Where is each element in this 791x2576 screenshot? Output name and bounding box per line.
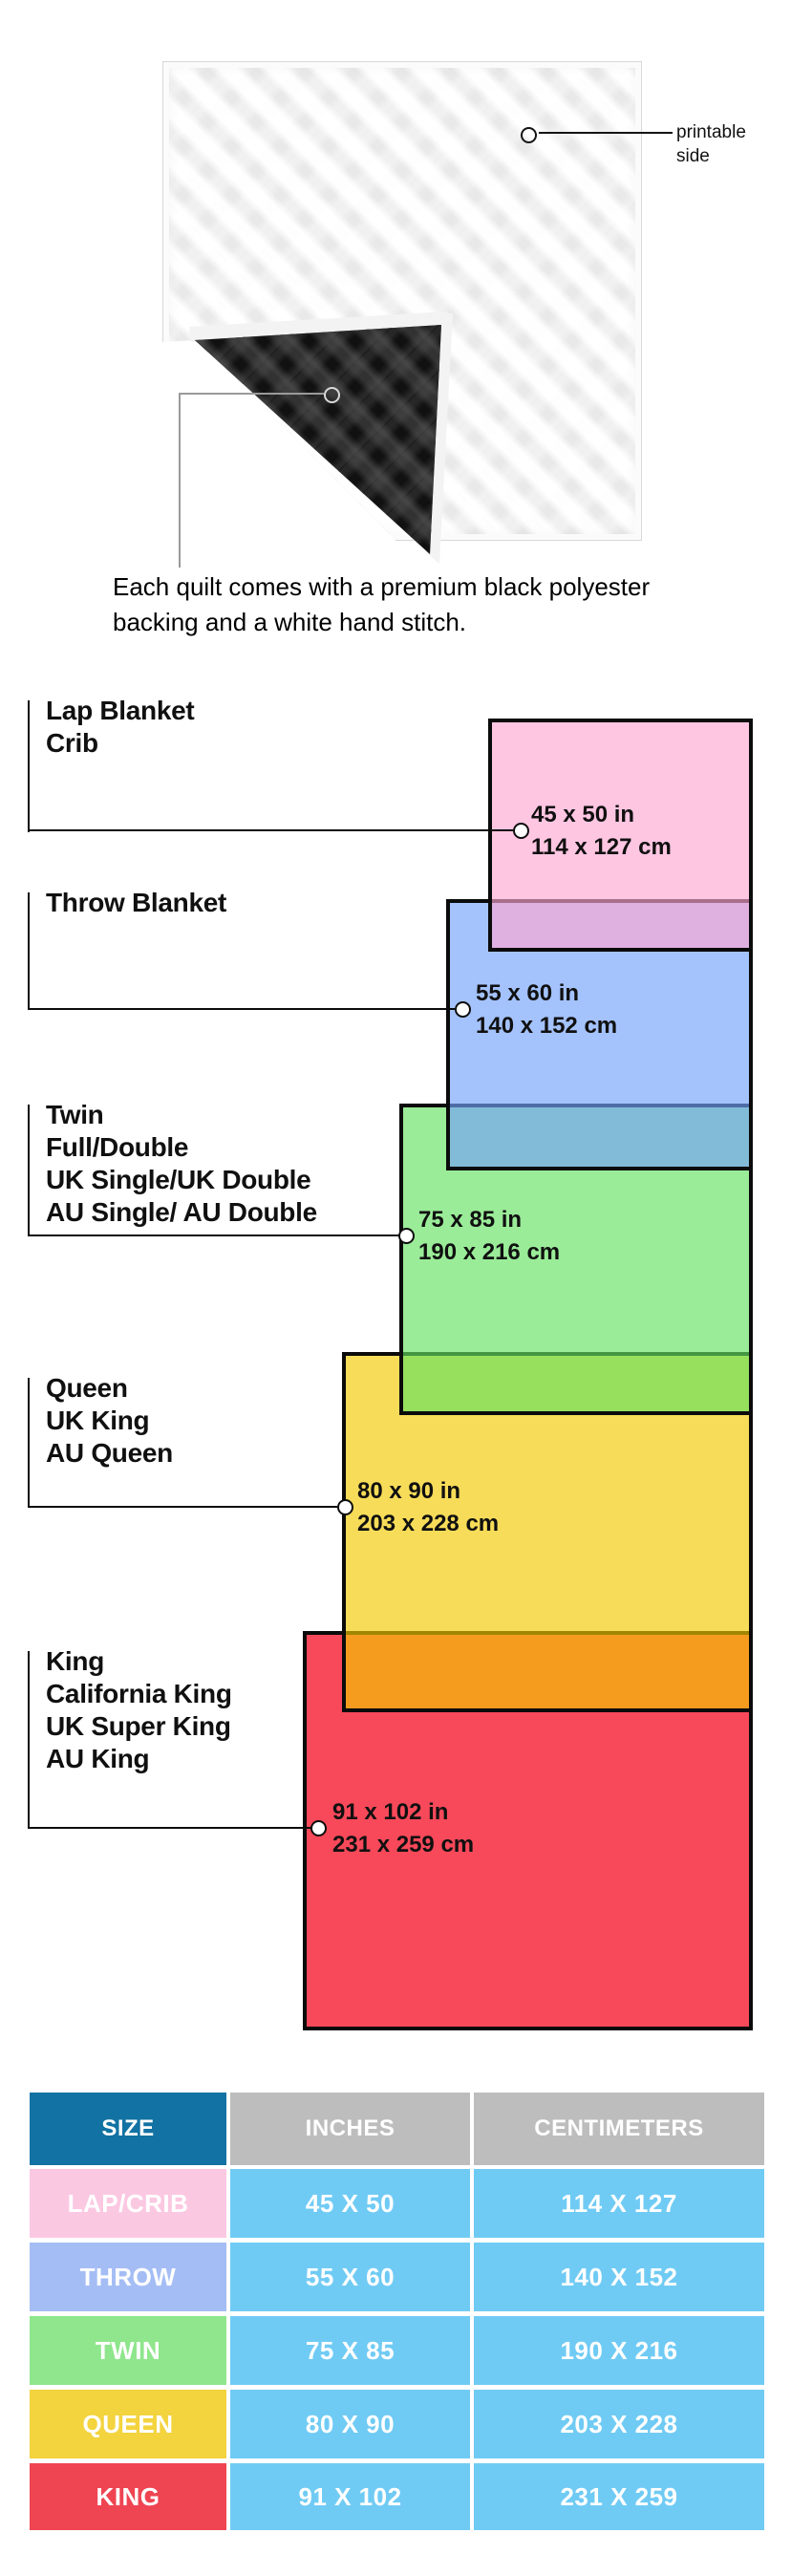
black-backing-leader-line-h: [180, 393, 324, 395]
size-label-queen: 80 x 90 in 203 x 228 cm: [357, 1475, 499, 1540]
printable-side-leader-line: [539, 132, 673, 134]
table-header-inches: INCHES: [230, 2093, 470, 2165]
leader-v-lap: [28, 700, 30, 832]
quilt-illustration: [162, 61, 640, 596]
table-cell-king-centimeters: 231 X 259: [474, 2463, 764, 2530]
quilt-caption: Each quilt comes with a premium black po…: [113, 569, 732, 640]
size-label-king: 91 x 102 in 231 x 259 cm: [332, 1796, 474, 1861]
leader-h-king: [28, 1827, 310, 1829]
table-cell-twin-label: TWIN: [30, 2316, 226, 2385]
size-label-throw: 55 x 60 in 140 x 152 cm: [476, 977, 617, 1042]
table-cell-throw-centimeters: 140 X 152: [474, 2243, 764, 2311]
leader-marker-icon-throw: [455, 1001, 471, 1018]
black-backing-leader-line-v: [179, 393, 181, 568]
table-cell-queen-centimeters: 203 X 228: [474, 2390, 764, 2458]
table-cell-queen-label: QUEEN: [30, 2390, 226, 2458]
leader-marker-icon-queen: [337, 1499, 353, 1515]
size-label-lap: 45 x 50 in 114 x 127 cm: [531, 799, 672, 864]
leader-h-lap: [28, 829, 513, 831]
leader-v-throw: [28, 892, 30, 1009]
table-header-centimeters: CENTIMETERS: [474, 2093, 764, 2165]
leader-marker-icon-king: [310, 1820, 327, 1836]
leader-marker-icon-twin: [398, 1228, 415, 1244]
infographic-canvas: printable side Each quilt comes with a p…: [0, 0, 791, 2576]
printable-side-marker-icon: [521, 127, 537, 143]
table-cell-lapcrib-label: LAP/CRIB: [30, 2169, 226, 2238]
leader-v-queen: [28, 1378, 30, 1507]
table-cell-twin-inches: 75 X 85: [230, 2316, 470, 2385]
table-cell-lapcrib-inches: 45 X 50: [230, 2169, 470, 2238]
table-cell-king-inches: 91 X 102: [230, 2463, 470, 2530]
size-heading-twin: Twin Full/Double UK Single/UK Double AU …: [46, 1099, 317, 1229]
table-cell-king-label: KING: [30, 2463, 226, 2530]
printable-side-label: printable side: [676, 120, 772, 168]
leader-h-twin: [28, 1234, 398, 1236]
leader-h-throw: [28, 1008, 455, 1010]
size-heading-lap: Lap Blanket Crib: [46, 695, 194, 760]
table-cell-throw-label: THROW: [30, 2243, 226, 2311]
size-label-twin: 75 x 85 in 190 x 216 cm: [418, 1204, 560, 1269]
leader-h-queen: [28, 1506, 337, 1508]
leader-v-twin: [28, 1105, 30, 1235]
table-cell-queen-inches: 80 X 90: [230, 2390, 470, 2458]
size-heading-king: King California King UK Super King AU Ki…: [46, 1645, 232, 1775]
size-heading-throw: Throw Blanket: [46, 887, 226, 919]
table-cell-throw-inches: 55 X 60: [230, 2243, 470, 2311]
leader-marker-icon-lap: [513, 823, 529, 839]
table-header-size: SIZE: [30, 2093, 226, 2165]
size-heading-queen: Queen UK King AU Queen: [46, 1372, 173, 1470]
leader-v-king: [28, 1651, 30, 1828]
black-backing-marker-icon: [324, 387, 340, 403]
table-cell-twin-centimeters: 190 X 216: [474, 2316, 764, 2385]
table-cell-lapcrib-centimeters: 114 X 127: [474, 2169, 764, 2238]
